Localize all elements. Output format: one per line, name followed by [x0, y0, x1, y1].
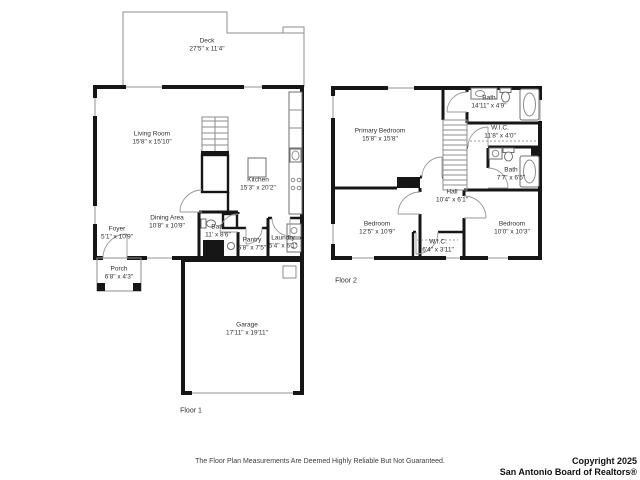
room-name: Bath: [497, 166, 525, 174]
room-name: Living Room: [132, 130, 171, 138]
kitchen-island: [248, 158, 266, 177]
bathtub-fixture: [520, 89, 539, 120]
room-dims: 11' x 8'6": [205, 231, 231, 239]
room-label-bedroom-left: Bedroom 12'5" x 10'9": [359, 220, 395, 235]
room-dims: 15'8" x 15'10": [132, 138, 171, 146]
room-name: W.I.C.: [484, 124, 516, 132]
room-dims: 17'11" x 19'11": [226, 329, 268, 337]
disclaimer-text: The Floor Plan Measurements Are Deemed H…: [195, 458, 445, 465]
room-name: Dining Area: [149, 214, 185, 222]
floor-plan-page: Deck 27'5" x 11'4" Living Room 15'8" x 1…: [0, 0, 640, 480]
room-label-pantry: Pantry 5'8" x 7'5": [238, 236, 266, 251]
room-name: Foyer: [101, 225, 133, 233]
water-heater-fixture: [283, 266, 296, 278]
room-label-garage: Garage 17'11" x 19'11": [226, 321, 268, 336]
room-name: Bath: [471, 94, 506, 102]
room-name: Porch: [105, 265, 133, 273]
room-dims: 10'0" x 10'3": [494, 228, 530, 236]
room-dims: 15'8" x 15'8": [355, 135, 406, 143]
room-dims: 5'4" x 6'1": [269, 242, 297, 250]
room-name: W.I.C.: [422, 238, 454, 246]
room-label-living-room: Living Room 15'8" x 15'10": [132, 130, 171, 145]
room-label-wic-top: W.I.C. 11'8" x 4'0": [484, 124, 516, 139]
room-name: Garage: [226, 321, 268, 329]
kitchen-sink-fixture: [290, 149, 301, 162]
floor-plan-drawing: [0, 0, 640, 480]
room-dims: 14'11" x 4'9": [471, 102, 506, 110]
floor1-plan: [95, 12, 304, 393]
copyright-year: Copyright 2025: [500, 456, 637, 466]
room-dims: 10'4" x 6'1": [436, 196, 468, 204]
room-name: Bedroom: [359, 220, 395, 228]
room-label-laundry: Laundry 5'4" x 6'1": [269, 234, 297, 249]
sink-fixture: [228, 243, 235, 250]
copyright-notice: Copyright 2025 San Antonio Board of Real…: [500, 456, 637, 477]
room-label-kitchen: Kitchen 15'3" x 20'2": [240, 176, 276, 191]
copyright-org: San Antonio Board of Realtors®: [500, 467, 637, 477]
room-name: Hall: [436, 188, 468, 196]
room-label-foyer: Foyer 5'1" x 10'9": [101, 225, 133, 240]
room-dims: 12'5" x 10'9": [359, 228, 395, 236]
room-label-wic-bottom: W.I.C. 6'4" x 3'11": [422, 238, 454, 253]
room-label-deck: Deck 27'5" x 11'4": [189, 37, 224, 52]
room-dims: 27'5" x 11'4": [189, 45, 224, 53]
floor1-tag: Floor 1: [180, 408, 202, 415]
floor2-doors: [398, 92, 508, 254]
room-dims: 7'7" x 6'5": [497, 174, 525, 182]
room-dims: 5'1" x 10'9": [101, 233, 133, 241]
room-name: Pantry: [238, 236, 266, 244]
room-name: Primary Bedroom: [355, 127, 406, 135]
room-name: Bath: [205, 223, 231, 231]
room-dims: 10'8" x 10'9": [149, 222, 185, 230]
toilet-fixture: [503, 148, 514, 161]
room-label-bath-right: Bath 7'7" x 6'5": [497, 166, 525, 181]
room-dims: 11'8" x 4'0": [484, 132, 516, 140]
stairs-floor2: [443, 120, 467, 190]
room-dims: 15'3" x 20'2": [240, 184, 276, 192]
room-dims: 6'8" x 4'3": [105, 273, 133, 281]
room-name: Deck: [189, 37, 224, 45]
vanity-sink-fixture: [489, 148, 502, 159]
room-label-bath-top: Bath 14'11" x 4'9": [471, 94, 506, 109]
room-name: Kitchen: [240, 176, 276, 184]
kitchen-counter: [289, 92, 302, 214]
room-dims: 6'4" x 3'11": [422, 246, 454, 254]
room-name: Bedroom: [494, 220, 530, 228]
room-name: Laundry: [269, 234, 297, 242]
room-dims: 5'8" x 7'5": [238, 244, 266, 252]
room-label-hall: Hall 10'4" x 6'1": [436, 188, 468, 203]
room-label-primary-bedroom: Primary Bedroom 15'8" x 15'8": [355, 127, 406, 142]
floor2-tag: Floor 2: [335, 278, 357, 285]
stairs-floor1: [201, 117, 229, 154]
room-label-dining-area: Dining Area 10'8" x 10'9": [149, 214, 185, 229]
room-label-bedroom-right: Bedroom 10'0" x 10'3": [494, 220, 530, 235]
room-label-porch: Porch 6'8" x 4'3": [105, 265, 133, 280]
room-label-bath-floor1: Bath 11' x 8'6": [205, 223, 231, 238]
